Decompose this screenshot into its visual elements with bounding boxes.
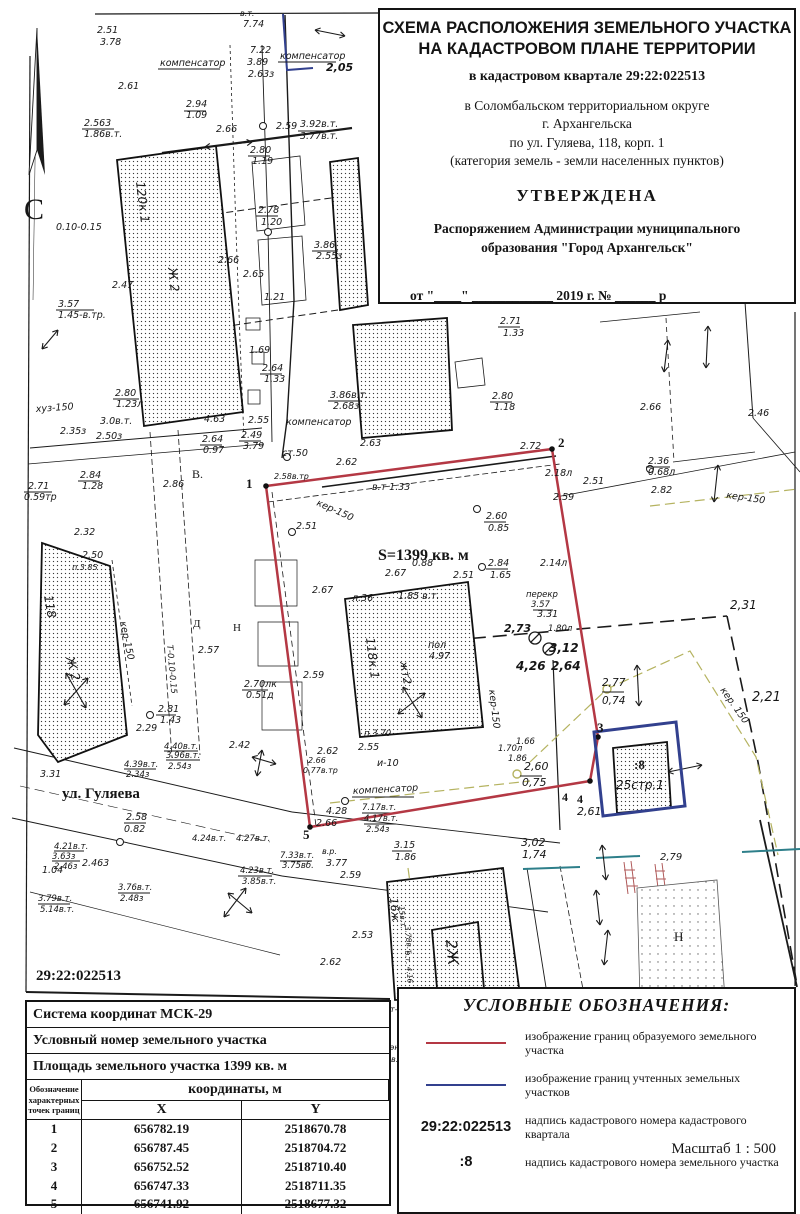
- map-label: 2,31: [730, 598, 757, 612]
- map-label: ул. Гуляева: [62, 786, 140, 802]
- legend-item-text: надпись кадастрового номера кадастрового…: [525, 1113, 786, 1142]
- map-label: 2.60: [486, 511, 507, 522]
- map-label: 2.57: [198, 645, 219, 656]
- map-label: 2.50з: [96, 431, 122, 442]
- map-label: 2.49: [241, 430, 262, 441]
- legend-symbol: [407, 1042, 525, 1044]
- map-label: 3.92в.т.: [300, 119, 338, 130]
- map-label: 2.71: [500, 316, 521, 327]
- map-label: 1: [246, 476, 253, 491]
- map-label: 1.43: [160, 715, 181, 726]
- map-label: 2.86: [163, 479, 184, 490]
- map-label: 2.66: [308, 756, 326, 765]
- map-label: 1.04: [42, 865, 63, 876]
- coordinates-grid: Обозначение характерных точек границ коо…: [27, 1080, 389, 1214]
- map-label: 3.77в.т.: [300, 131, 338, 142]
- map-label: 0.88: [412, 558, 433, 569]
- map-label: 2,79: [660, 852, 682, 863]
- map-label: компенсатор: [286, 417, 351, 428]
- map-label: 2.78: [258, 205, 279, 216]
- map-label: 0,74: [602, 695, 625, 707]
- map-label: 3: [597, 720, 604, 735]
- map-label: 2.64: [262, 363, 283, 374]
- map-label: 2.66: [640, 402, 661, 413]
- map-label: 25стр.1: [616, 778, 664, 792]
- map-label: 4.63: [204, 414, 225, 425]
- map-label: 2,64: [551, 659, 581, 673]
- map-label: 4.17в.т.: [364, 814, 398, 824]
- map-label: и-10: [377, 758, 399, 769]
- map-label: 0.77в.тр: [303, 766, 338, 775]
- map-label: 1.20: [261, 217, 282, 228]
- area-row: Площадь земельного участка 1399 кв. м: [27, 1054, 389, 1080]
- map-label: 4.97: [429, 651, 450, 662]
- map-label: 4,26: [515, 659, 546, 673]
- map-label: Д: [193, 618, 201, 630]
- map-label: 2.84: [488, 558, 509, 569]
- map-label: Н: [674, 929, 683, 944]
- map-label: 3,12: [549, 641, 579, 655]
- conditional-number-row: Условный номер земельного участка: [27, 1028, 389, 1054]
- map-label: 0.85: [488, 523, 509, 534]
- map-label: 2Ж: [442, 939, 462, 967]
- legend-item: изображение границ учтенных земельных уч…: [407, 1071, 786, 1100]
- map-label: 2.35з: [60, 426, 86, 437]
- map-label: 2.66: [316, 818, 337, 829]
- map-label: 2.67: [312, 585, 333, 596]
- x-column: 656782.19656787.45656752.52656747.336567…: [82, 1120, 242, 1214]
- coord-value: 2518677.32: [242, 1195, 389, 1214]
- map-label: 1.45-в.тр.: [58, 310, 106, 321]
- map-label: 2.84: [80, 470, 101, 481]
- map-label: 3.57: [58, 299, 79, 310]
- map-label: 3.31: [40, 769, 61, 780]
- map-label: 2.72: [520, 441, 541, 452]
- map-label: 0.51д: [246, 690, 274, 701]
- map-label: 1.80л: [548, 624, 573, 634]
- map-label: в.р.: [322, 847, 337, 856]
- map-label: в.т.: [240, 9, 254, 18]
- map-label: 3.76в.т.: [118, 883, 152, 893]
- map-label: 7.33в.т.: [280, 851, 314, 861]
- map-label: 1.33: [264, 374, 285, 385]
- map-label: 1.23л: [116, 399, 143, 410]
- city-line: г. Архангельска: [380, 115, 794, 133]
- map-label: 2.48з: [120, 894, 144, 904]
- map-label: 2.563: [84, 118, 111, 129]
- map-label: 3.78: [100, 37, 121, 48]
- legend-line-swatch: [426, 1042, 506, 1044]
- map-label: 2.64: [202, 434, 223, 445]
- legend-symbol-text: :8: [460, 1154, 473, 1170]
- map-label: 4: [562, 790, 568, 804]
- map-label: 2.32: [74, 527, 95, 538]
- map-label: 2.81: [158, 704, 179, 715]
- map-label: 4.24в.т.: [192, 834, 226, 844]
- coord-value: 656787.45: [82, 1139, 241, 1158]
- map-label: 7.17в.т.: [362, 803, 396, 813]
- map-label: 2.59: [340, 870, 361, 881]
- map-label: 2.29: [136, 723, 157, 734]
- map-label: 1.21: [264, 292, 285, 303]
- coord-value: 656741.92: [82, 1195, 241, 1214]
- map-label: 1.86в.т.: [84, 129, 122, 140]
- coord-value: 2518704.72: [242, 1139, 389, 1158]
- map-label: 1.33: [503, 328, 524, 339]
- order-line2: образования "Город Архангельск": [380, 239, 794, 258]
- scale-label: Масштаб 1 : 500: [671, 1141, 776, 1158]
- map-label: 2.51: [453, 570, 474, 581]
- coord-value: 656752.52: [82, 1158, 241, 1177]
- cadastral-scheme-page: в.т.7.742.513.78компенсатор7.223.892.63з…: [0, 0, 800, 1214]
- legend-symbol-text: 29:22:022513: [421, 1119, 511, 1135]
- map-label: 29:22:022513: [36, 968, 121, 984]
- legend-symbol: 29:22:022513: [407, 1119, 525, 1135]
- map-label: 2.51: [583, 476, 604, 487]
- map-label: 1.28: [82, 481, 103, 492]
- scheme-title-line2: НА КАДАСТРОВОМ ПЛАНЕ ТЕРРИТОРИИ: [380, 39, 794, 60]
- map-label: 2.67: [385, 568, 406, 579]
- map-label: 2.55з: [316, 251, 342, 262]
- map-label: в.т 1.33: [372, 482, 410, 493]
- map-label: 2.46: [748, 408, 769, 419]
- map-label: 3.63з: [52, 852, 76, 862]
- legend-item-text: изображение границ образуемого земельног…: [525, 1029, 786, 1058]
- map-label: 2.58: [126, 812, 147, 823]
- map-label: 2.65: [243, 269, 264, 280]
- map-label: 3.85в.т.: [242, 877, 276, 887]
- map-label: 3.89: [247, 57, 268, 68]
- map-label: 1.69: [249, 345, 270, 356]
- map-label: 3.0в.т.: [100, 416, 132, 427]
- map-label: 1.85 в.т.: [398, 591, 439, 602]
- map-label: 2,61: [577, 805, 602, 818]
- map-label: 2.62: [320, 957, 341, 968]
- cadastral-quarter-line: в кадастровом квартале 29:22:022513: [380, 69, 794, 85]
- scheme-title-line1: СХЕМА РАСПОЛОЖЕНИЯ ЗЕМЕЛЬНОГО УЧАСТКА: [380, 18, 794, 39]
- map-label: 2.54з: [366, 825, 390, 835]
- map-label: 2.42: [229, 740, 250, 751]
- map-label: 2.80: [250, 145, 271, 156]
- map-label: 2.63з: [248, 69, 274, 80]
- map-label: пол: [428, 640, 446, 651]
- map-label: 3.96в.т.: [166, 751, 200, 761]
- coord-value: 1: [27, 1120, 81, 1139]
- coord-system-row: Система координат МСК-29: [27, 1002, 389, 1028]
- map-label: 2.14л: [540, 558, 567, 569]
- map-label: 2.59: [276, 121, 297, 132]
- map-label: 1,74: [522, 848, 547, 861]
- map-label: 1.19: [252, 156, 273, 167]
- map-label: 2.70лк: [244, 679, 277, 690]
- map-label: 2: [558, 435, 565, 450]
- coord-value: 3: [27, 1158, 81, 1177]
- map-label: С: [24, 193, 44, 226]
- map-label: 2.51: [97, 25, 118, 36]
- y-header: Y: [242, 1101, 389, 1120]
- map-label: 2,60: [524, 760, 549, 773]
- coord-value: 4: [27, 1177, 81, 1196]
- map-label: 1.86: [395, 852, 416, 863]
- map-label: 3.79в.т.: [38, 894, 72, 904]
- coord-value: 2518710.40: [242, 1158, 389, 1177]
- map-label: 4.21в.т.: [54, 842, 88, 852]
- map-label: 2.51: [296, 521, 317, 532]
- map-label: 4: [577, 792, 583, 806]
- map-label: 3.77: [326, 858, 347, 869]
- coord-value: 656747.33: [82, 1177, 241, 1196]
- okrug-line: в Соломбальском территориальном округе: [380, 97, 794, 115]
- coord-value: 5: [27, 1195, 81, 1214]
- address-line: по ул. Гуляева, 118, корп. 1: [380, 134, 794, 152]
- legend: УСЛОВНЫЕ ОБОЗНАЧЕНИЯ: изображение границ…: [397, 987, 796, 1214]
- coord-value: 2518711.35: [242, 1177, 389, 1196]
- map-label: 3.31: [537, 609, 558, 620]
- map-label: 2.66: [218, 255, 239, 266]
- map-label: 2.94: [186, 99, 207, 110]
- map-label: 1.09: [186, 110, 207, 121]
- map-label: п.3.85: [72, 563, 98, 572]
- map-label: 0.82: [124, 824, 145, 835]
- map-label: 3.79: [243, 441, 264, 452]
- map-label: 3.15: [394, 840, 415, 851]
- legend-item: изображение границ образуемого земельног…: [407, 1029, 786, 1058]
- map-label: 3.86: [314, 240, 335, 251]
- map-label: 0,75: [522, 776, 547, 789]
- map-label: 2.59: [303, 670, 324, 681]
- map-label: 2.63: [360, 438, 381, 449]
- legend-symbol: :8: [407, 1154, 525, 1170]
- map-label: 2,77: [602, 677, 626, 689]
- map-label: 2.55: [358, 742, 379, 753]
- map-label: 1.65: [490, 570, 511, 581]
- x-header: X: [82, 1101, 242, 1120]
- legend-item-text: изображение границ учтенных земельных уч…: [525, 1071, 786, 1100]
- coordinates-table: Система координат МСК-29 Условный номер …: [25, 1000, 391, 1206]
- map-label: перекр: [526, 590, 558, 600]
- map-label: 7.74: [243, 19, 264, 30]
- legend-item: 29:22:022513надпись кадастрового номера …: [407, 1113, 786, 1142]
- order-line1: Распоряжением Администрации муниципально…: [380, 220, 794, 239]
- map-label: 2.61: [118, 81, 139, 92]
- map-label: ст.50: [282, 448, 308, 459]
- map-label: 4.23в.т.: [240, 866, 274, 876]
- legend-symbol: [407, 1084, 525, 1086]
- map-label: 4.27в.т.: [236, 834, 270, 844]
- map-label: п.3.70: [364, 729, 391, 739]
- map-label: 2.62: [336, 457, 357, 468]
- map-label: 2.59: [553, 492, 574, 503]
- map-label: 2.68з: [333, 401, 359, 412]
- map-label: 2.71: [28, 481, 49, 492]
- y-column: 2518670.782518704.722518710.402518711.35…: [242, 1120, 389, 1214]
- map-label: 2.66: [216, 124, 237, 135]
- map-label: 5.14в.т.: [40, 905, 74, 915]
- legend-line-swatch: [426, 1084, 506, 1086]
- map-label: 2.463: [82, 858, 109, 869]
- map-label: компенсатор: [160, 58, 225, 69]
- coordinates-header: координаты, м: [82, 1080, 389, 1101]
- map-label: 0.10-0.15: [56, 222, 102, 233]
- map-label: 2.80: [492, 391, 513, 402]
- date-blank-line: от "____" ____________ 2019 г. № ______ …: [380, 288, 794, 304]
- map-label: 4.28: [326, 806, 347, 817]
- map-label: 3.75вб.: [282, 861, 314, 871]
- map-label: 2.50: [82, 550, 103, 561]
- map-label: 1.66: [516, 737, 536, 747]
- coord-value: 656782.19: [82, 1120, 241, 1139]
- map-label: 2.55: [248, 415, 269, 426]
- map-label: 2.58в.тр: [274, 472, 309, 481]
- map-label: Н: [233, 622, 241, 634]
- map-label: 2,73: [504, 622, 531, 635]
- map-label: 0.68л: [648, 467, 675, 478]
- point-number-column: 12345: [27, 1120, 82, 1214]
- map-label: 7.22: [250, 45, 271, 56]
- map-label: 2.36: [648, 456, 669, 467]
- land-category-line: (категория земель - земли населенных пун…: [380, 152, 794, 170]
- map-label: 2.34з: [126, 770, 150, 780]
- map-label: 2.54з: [168, 762, 192, 772]
- map-label: 2.18л: [545, 468, 572, 479]
- coord-value: 2518670.78: [242, 1120, 389, 1139]
- designation-header: Обозначение характерных точек границ: [27, 1080, 82, 1120]
- approved-label: УТВЕРЖДЕНА: [380, 186, 794, 206]
- map-label: 1.18: [494, 402, 515, 413]
- map-label: В.: [192, 467, 203, 481]
- map-label: 5: [303, 827, 310, 842]
- legend-title: УСЛОВНЫЕ ОБОЗНАЧЕНИЯ:: [407, 995, 786, 1016]
- map-label: 0.59тр: [24, 492, 57, 503]
- map-label: 2.80: [115, 388, 136, 399]
- map-label: 2,21: [752, 690, 781, 705]
- map-label: л.36: [351, 593, 373, 604]
- map-label: 3.86в.т.: [330, 390, 368, 401]
- map-label: 2.53: [352, 930, 373, 941]
- map-label: 2.47: [112, 280, 133, 291]
- map-label: 2.82: [651, 485, 672, 496]
- coord-value: 2: [27, 1139, 81, 1158]
- map-label: 4.39в.т.: [124, 760, 158, 770]
- title-block: СХЕМА РАСПОЛОЖЕНИЯ ЗЕМЕЛЬНОГО УЧАСТКА НА…: [378, 8, 796, 304]
- map-label: :8: [634, 757, 645, 772]
- map-label: 2,05: [326, 61, 353, 74]
- map-label: 0.97: [203, 445, 224, 456]
